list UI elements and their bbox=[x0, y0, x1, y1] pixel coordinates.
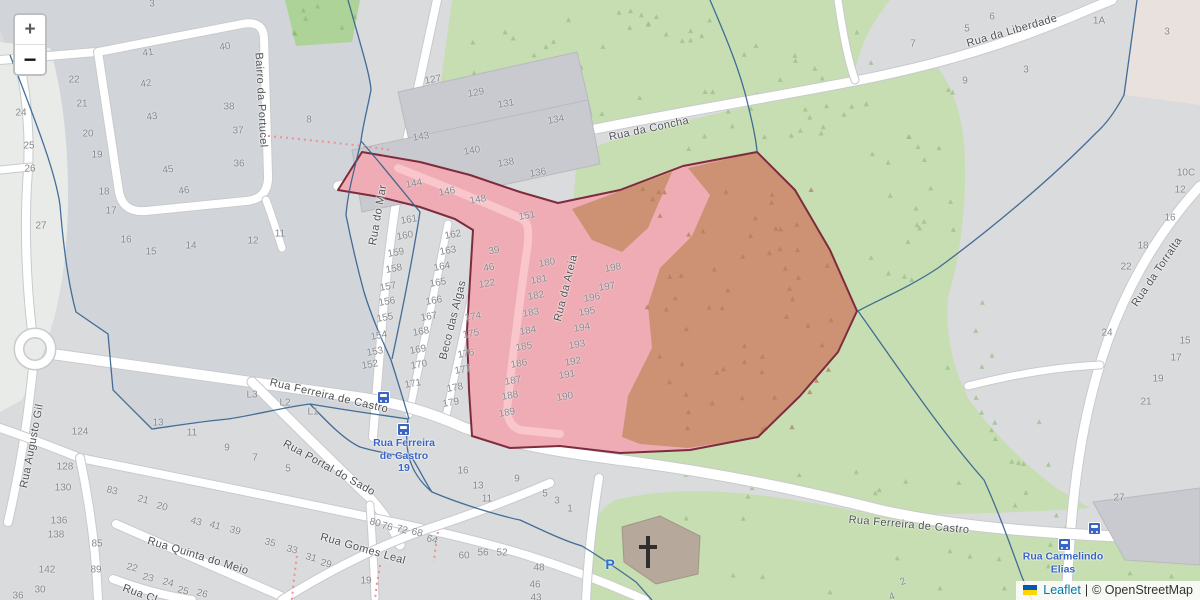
map-canvas[interactable]: 3404142222124384337202519264536461817271… bbox=[0, 0, 1200, 600]
zoom-in-button[interactable]: + bbox=[15, 15, 45, 45]
attribution-separator: | bbox=[1085, 583, 1088, 597]
zoom-out-button[interactable]: − bbox=[15, 45, 45, 74]
forest-top-small bbox=[285, 0, 360, 46]
openstreetmap-link[interactable]: © OpenStreetMap bbox=[1092, 583, 1193, 597]
road bbox=[0, 167, 30, 170]
map-tiles bbox=[0, 0, 1200, 600]
ukraine-flag-icon bbox=[1023, 585, 1037, 595]
leaflet-link[interactable]: Leaflet bbox=[1043, 583, 1081, 597]
residential-beige bbox=[1125, 0, 1200, 105]
attribution-bar: Leaflet | © OpenStreetMap bbox=[1016, 581, 1200, 600]
zoom-control: + − bbox=[13, 13, 47, 76]
